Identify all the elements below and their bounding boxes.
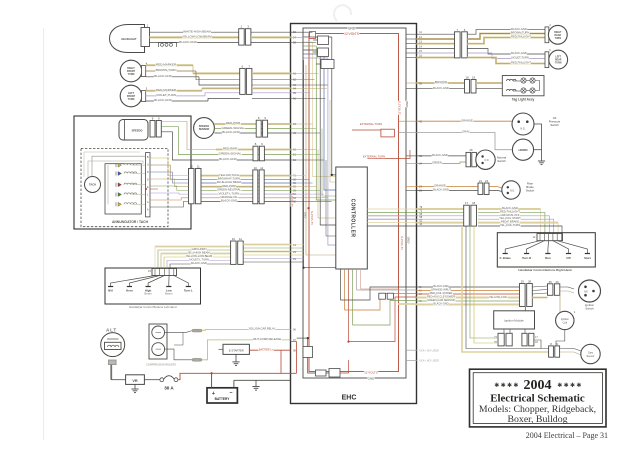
svg-text:Switch: Switch [585, 307, 594, 311]
svg-text:RED-TAILLIGHT: RED-TAILLIGHT [511, 35, 531, 39]
svg-text:REAR: REAR [555, 34, 562, 37]
svg-text:BATTERY +: BATTERY + [259, 347, 274, 351]
svg-text:GND: GND [304, 211, 308, 219]
svg-text:✱✱✱✱: ✱✱✱✱ [494, 382, 520, 389]
svg-text:HEADLIGHT: HEADLIGHT [121, 37, 137, 41]
svg-text:11: 11 [260, 166, 263, 170]
svg-text:RED-F BRAKE: RED-F BRAKE [501, 220, 519, 224]
svg-text:XXX+ NO USED: XXX+ NO USED [419, 348, 439, 352]
svg-text:✱✱✱✱: ✱✱✱✱ [557, 382, 583, 389]
svg-text:12 VOLTS: 12 VOLTS [398, 101, 402, 115]
svg-text:17: 17 [465, 201, 469, 205]
svg-text:Boxer, Bulldog: Boxer, Bulldog [507, 414, 567, 425]
svg-text:Beam: Beam [165, 292, 173, 296]
svg-text:BRN-PUR: BRN-PUR [435, 80, 447, 84]
svg-text:BLACK-GND: BLACK-GND [221, 199, 237, 203]
svg-text:BLACK-GND: BLACK-GND [191, 261, 207, 265]
svg-text:Ignition Module: Ignition Module [504, 318, 524, 322]
svg-text:VR: VR [132, 379, 138, 383]
svg-text:GRN-RUN-OFF: GRN-RUN-OFF [501, 213, 520, 217]
svg-text:2004: 2004 [524, 378, 552, 393]
svg-text:2004 Electrical – Page 31: 2004 Electrical – Page 31 [526, 431, 608, 440]
svg-text:SPEEDO: SPEEDO [132, 129, 143, 133]
svg-text:16: 16 [232, 237, 236, 241]
svg-text:−: − [229, 390, 232, 396]
svg-text:NO: NO [584, 291, 588, 293]
svg-text:Run: Run [545, 256, 551, 260]
svg-text:BLACK-GND: BLACK-GND [433, 284, 448, 288]
svg-text:Handlebar Control Buttons Rig: Handlebar Control Buttons Right Hand [518, 268, 571, 272]
svg-text:RED-PWR: RED-PWR [223, 147, 238, 151]
svg-text:GREEN-SIGNAL: GREEN-SIGNAL [222, 126, 245, 130]
svg-text:BLACK-GND: BLACK-GND [511, 51, 527, 55]
svg-text:BLACK-GND: BLACK-GND [511, 27, 527, 31]
svg-text:TURN: TURN [128, 73, 135, 76]
svg-text:11: 11 [197, 165, 200, 169]
svg-text:BLACK-GND: BLACK-GND [433, 188, 449, 192]
svg-text:Tag Light Assy: Tag Light Assy [512, 97, 535, 101]
svg-text:Turn-R: Turn-R [522, 256, 532, 260]
svg-text:GREEN: GREEN [432, 161, 442, 165]
svg-text:RED-TAILLIGHT: RED-TAILLIGHT [511, 61, 531, 65]
svg-text:26: 26 [556, 280, 560, 284]
svg-text:RED-MARKER: RED-MARKER [156, 62, 177, 66]
svg-text:F. Brake: F. Brake [500, 256, 511, 260]
svg-text:GRAY: GRAY [462, 130, 470, 134]
svg-text:Sensor: Sensor [587, 355, 595, 358]
svg-text:BLACK-GND: BLACK-GND [432, 153, 448, 157]
svg-text:BLACK-GND: BLACK-GND [502, 206, 518, 210]
svg-text:GRN-HORN: GRN-HORN [192, 247, 207, 251]
svg-text:TACH: TACH [89, 183, 96, 187]
svg-text:Switch: Switch [550, 123, 559, 127]
svg-text:VIOLET-TURN: VIOLET-TURN [511, 56, 529, 60]
svg-text:BROWN-TURN: BROWN-TURN [511, 31, 530, 35]
svg-text:WHT-COMP RELEASE: WHT-COMP RELEASE [253, 337, 281, 341]
svg-text:HORN: HORN [518, 148, 528, 152]
svg-text:ANNUNCIATOR / TACH: ANNUNCIATOR / TACH [112, 220, 149, 224]
svg-text:ORANGE: ORANGE [461, 118, 473, 122]
svg-text:BLACK-GND: BLACK-GND [219, 157, 237, 161]
svg-text:GND: GND [407, 236, 411, 244]
svg-text:BLACK-GND: BLACK-GND [179, 40, 197, 44]
svg-text:BLACK-GND: BLACK-GND [433, 301, 448, 305]
svg-text:YEL-COIL TURN: YEL-COIL TURN [500, 223, 520, 227]
svg-text:18: 18 [465, 76, 469, 80]
svg-text:BLACK-GND: BLACK-GND [154, 74, 172, 78]
svg-text:WHITE-HIGH BEAM: WHITE-HIGH BEAM [183, 29, 211, 33]
svg-text:Switch: Switch [497, 159, 506, 163]
svg-text:19: 19 [472, 76, 476, 80]
svg-text:18: 18 [472, 201, 476, 205]
svg-text:22: 22 [485, 179, 489, 183]
svg-text:28: 28 [528, 280, 532, 284]
svg-text:BLACK-GND: BLACK-GND [433, 86, 449, 90]
svg-text:BLU-HIGH BEAM: BLU-HIGH BEAM [188, 251, 210, 255]
svg-text:12 VOLTS: 12 VOLTS [400, 236, 404, 250]
svg-text:YEL-COIL START: YEL-COIL START [499, 216, 521, 220]
svg-text:E STARTER: E STARTER [229, 348, 244, 352]
svg-text:ORANGE: ORANGE [434, 184, 446, 188]
svg-text:GND: GND [348, 26, 356, 30]
svg-text:EHC: EHC [342, 395, 357, 402]
svg-text:YELLOW-LOW BEAM: YELLOW-LOW BEAM [186, 254, 213, 258]
svg-text:RED-PWR: RED-PWR [226, 121, 241, 125]
svg-text:LEFT: LEFT [555, 57, 561, 59]
svg-text:Coil: Coil [563, 321, 568, 324]
svg-text:N.O.: N.O. [521, 128, 526, 131]
svg-text:21: 21 [479, 179, 483, 183]
svg-text:ORANGE-INPUT: ORANGE-INPUT [431, 287, 451, 291]
svg-text:Handlebar Control Buttons Lef: Handlebar Control Buttons Left Hand [129, 305, 177, 309]
svg-text:Switch: Switch [526, 189, 535, 193]
svg-text:12: 12 [239, 237, 243, 241]
svg-text:10: 10 [190, 165, 194, 169]
svg-text:Horn: Horn [126, 289, 133, 293]
svg-text:TURN: TURN [555, 38, 562, 40]
svg-text:YELLOW-CAP RELAY: YELLOW-CAP RELAY [249, 327, 276, 331]
svg-text:RIGHT: RIGHT [554, 32, 562, 34]
svg-text:EXTERNAL TURN: EXTERNAL TURN [360, 122, 382, 126]
svg-text:RED-TAILLIGHT: RED-TAILLIGHT [500, 209, 520, 213]
svg-text:VIOLET-TURN: VIOLET-TURN [156, 93, 176, 97]
svg-text:BLACK-GND: BLACK-GND [222, 130, 240, 134]
svg-text:REAR: REAR [555, 59, 562, 62]
svg-text:RED-COIL POWER: RED-COIL POWER [430, 291, 453, 295]
svg-text:YELLOW-LOW BEAM: YELLOW-LOW BEAM [182, 35, 212, 39]
svg-text:GREEN-CAM SENSOR: GREEN-CAM SENSOR [427, 298, 455, 302]
svg-text:12 VOLTS: 12 VOLTS [364, 370, 378, 374]
svg-text:TURN: TURN [555, 63, 562, 65]
svg-text:Beam: Beam [144, 292, 152, 296]
svg-text:RED-MARKER: RED-MARKER [156, 88, 177, 92]
svg-text:GREEN-SIGNAL: GREEN-SIGNAL [219, 152, 242, 156]
svg-text:XXX+ NO USED: XXX+ NO USED [419, 359, 439, 363]
svg-text:G: G [147, 180, 149, 182]
svg-text:N.O.: N.O. [510, 190, 515, 192]
svg-text:VIOLET-L TURN: VIOLET-L TURN [189, 258, 209, 262]
svg-text:CONTROLLER: CONTROLLER [350, 199, 356, 238]
svg-text:COMPRESSION RELIEFS: COMPRESSION RELIEFS [146, 363, 176, 366]
svg-text:Off: Off [566, 256, 570, 260]
svg-text:BLACK-GND: BLACK-GND [154, 98, 172, 102]
svg-text:Turn-L: Turn-L [184, 289, 193, 293]
svg-text:GND: GND [405, 100, 409, 108]
svg-text:Start: Start [584, 256, 591, 260]
svg-text:BATTERY: BATTERY [215, 397, 231, 401]
svg-text:12 VOLTS: 12 VOLTS [344, 32, 359, 36]
svg-text:BROWN-TURN: BROWN-TURN [156, 68, 177, 72]
svg-text:RED-AUX CLE POWER: RED-AUX CLE POWER [427, 294, 455, 298]
svg-text:Electrical Schematic: Electrical Schematic [490, 393, 585, 405]
svg-text:29: 29 [521, 280, 525, 284]
svg-text:N.O.: N.O. [485, 160, 490, 162]
svg-text:GND: GND [368, 376, 376, 380]
svg-text:YELLOW-COIL: YELLOW-COIL [489, 295, 508, 299]
svg-text:10: 10 [254, 166, 258, 170]
svg-text:12 VOLTS: 12 VOLTS [310, 211, 314, 225]
svg-text:ALT: ALT [106, 328, 117, 333]
svg-text:EXTERNAL TURN: EXTERNAL TURN [363, 154, 385, 158]
svg-text:SENSOR: SENSOR [199, 128, 210, 131]
svg-text:25: 25 [549, 280, 553, 284]
svg-text:TURN: TURN [128, 98, 135, 101]
svg-text:30 A: 30 A [164, 386, 174, 391]
